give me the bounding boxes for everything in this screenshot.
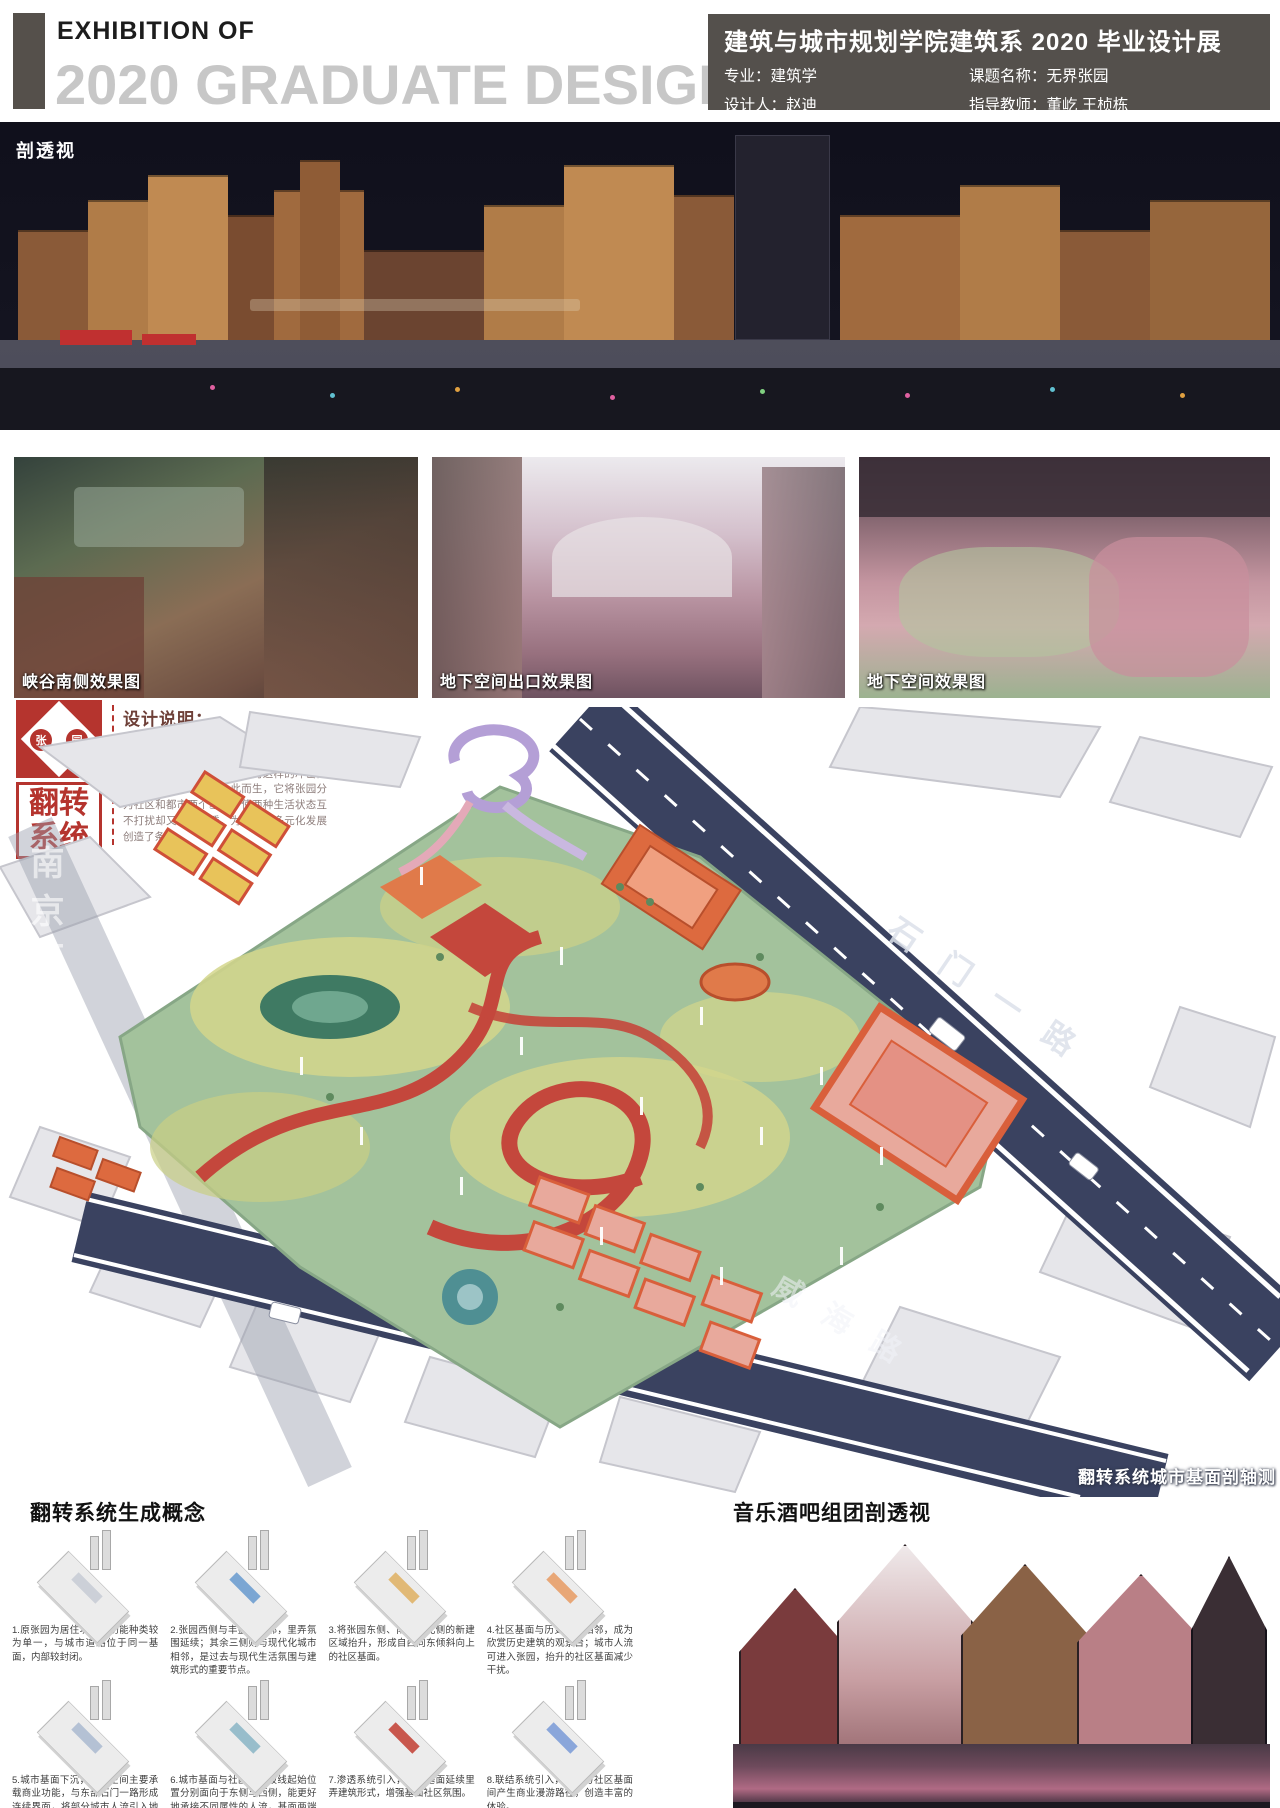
rendering-caption: 峡谷南侧效果图 xyxy=(22,668,141,692)
poster-board: EXHIBITION OF 2020 GRADUATE DESIGN 建筑与城市… xyxy=(0,0,1280,1808)
concept-step-7: 7.渗透系统引入，社区基面延续里弄建筑形式，增强基面社区氛围。 xyxy=(327,1678,477,1808)
axon-caption: 翻转系统城市基面剖轴测 xyxy=(1078,1463,1276,1488)
concept-diagram xyxy=(12,1678,158,1770)
header-accent-bar xyxy=(13,13,45,109)
panorama-street-level xyxy=(0,368,1280,430)
concept-diagram xyxy=(170,1528,316,1620)
department-title: 建筑与城市规划学院建筑系 2020 毕业设计展 xyxy=(724,22,1254,57)
concept-diagram xyxy=(329,1678,475,1770)
concept-diagram xyxy=(170,1678,316,1770)
music-bar-section-drawing xyxy=(733,1530,1270,1808)
concept-diagram xyxy=(12,1528,158,1620)
concept-step-8: 8.联结系统引入，城市与社区基面间产生商业漫游路径，创造丰富的体验。 xyxy=(485,1678,635,1808)
section-perspective-caption: 剖透视 xyxy=(16,137,76,163)
music-bar-section-title: 音乐酒吧组团剖透视 xyxy=(733,1497,931,1527)
red-banner xyxy=(60,330,132,345)
section-ground-line xyxy=(733,1802,1270,1808)
section-perspective-image: 剖透视 xyxy=(0,127,1280,430)
rendering-underground-exit: 地下空间出口效果图 xyxy=(432,457,845,698)
designer-label: 设计人：赵迪 xyxy=(724,93,969,115)
rendering-caption: 地下空间出口效果图 xyxy=(440,668,593,692)
axon-illustration xyxy=(0,707,1280,1497)
exhibition-label: EXHIBITION OF xyxy=(57,17,255,46)
concept-step-1: 1.原张园为居住功能，功能种类较为单一，与城市道路位于同一基面，内部较封闭。 xyxy=(10,1528,160,1678)
concept-diagram xyxy=(329,1528,475,1620)
concept-diagram xyxy=(487,1528,633,1620)
concept-diagram-grid: 1.原张园为居住功能，功能种类较为单一，与城市道路位于同一基面，内部较封闭。 2… xyxy=(10,1528,635,1808)
red-banner xyxy=(142,334,196,345)
concept-diagram xyxy=(487,1678,633,1770)
concept-step-2: 2.张园西侧与丰盛里相邻，里弄氛围延续；其余三侧则与现代化城市相邻，是过去与现代… xyxy=(168,1528,318,1678)
project-info-box: 建筑与城市规划学院建筑系 2020 毕业设计展 专业：建筑学 课题名称：无界张园… xyxy=(708,14,1270,110)
concept-step-6: 6.城市基面与社区基面坡线起始位置分别面向于东侧与西侧，能更好地承接不同属性的人… xyxy=(168,1678,318,1808)
rendering-underground-space: 地下空间效果图 xyxy=(859,457,1270,698)
axonometric-masterplan: 南京西路 石门一路 威海路 翻转系统城市基面剖轴测 xyxy=(0,707,1280,1497)
topic-label: 课题名称：无界张园 xyxy=(969,64,1109,86)
page-title: 2020 GRADUATE DESIGN xyxy=(55,52,739,117)
concept-section-title: 翻转系统生成概念 xyxy=(30,1497,206,1527)
street-label-nanjing-west-rd: 南京西路 xyxy=(20,845,69,1037)
concept-step-5: 5.城市基面下沉，地下空间主要承载商业功能，与东部石门一路形成连续界面，将部分城… xyxy=(10,1678,160,1808)
major-label: 专业：建筑学 xyxy=(724,64,969,86)
concept-step-4: 4.社区基面与历史街区相邻，成为欣赏历史建筑的观景台；城市人流可进入张园，抬升的… xyxy=(485,1528,635,1678)
rendering-caption: 地下空间效果图 xyxy=(867,668,986,692)
advisor-label: 指导教师：董屹 王桢栋 xyxy=(969,93,1128,115)
rendering-canyon-south: 峡谷南侧效果图 xyxy=(14,457,418,698)
section-interior-band xyxy=(733,1744,1270,1808)
concept-step-3: 3.将张园东侧、南侧、北侧的新建区域抬升，形成自西向东倾斜向上的社区基面。 xyxy=(327,1528,477,1678)
elevated-walkway xyxy=(250,299,580,311)
